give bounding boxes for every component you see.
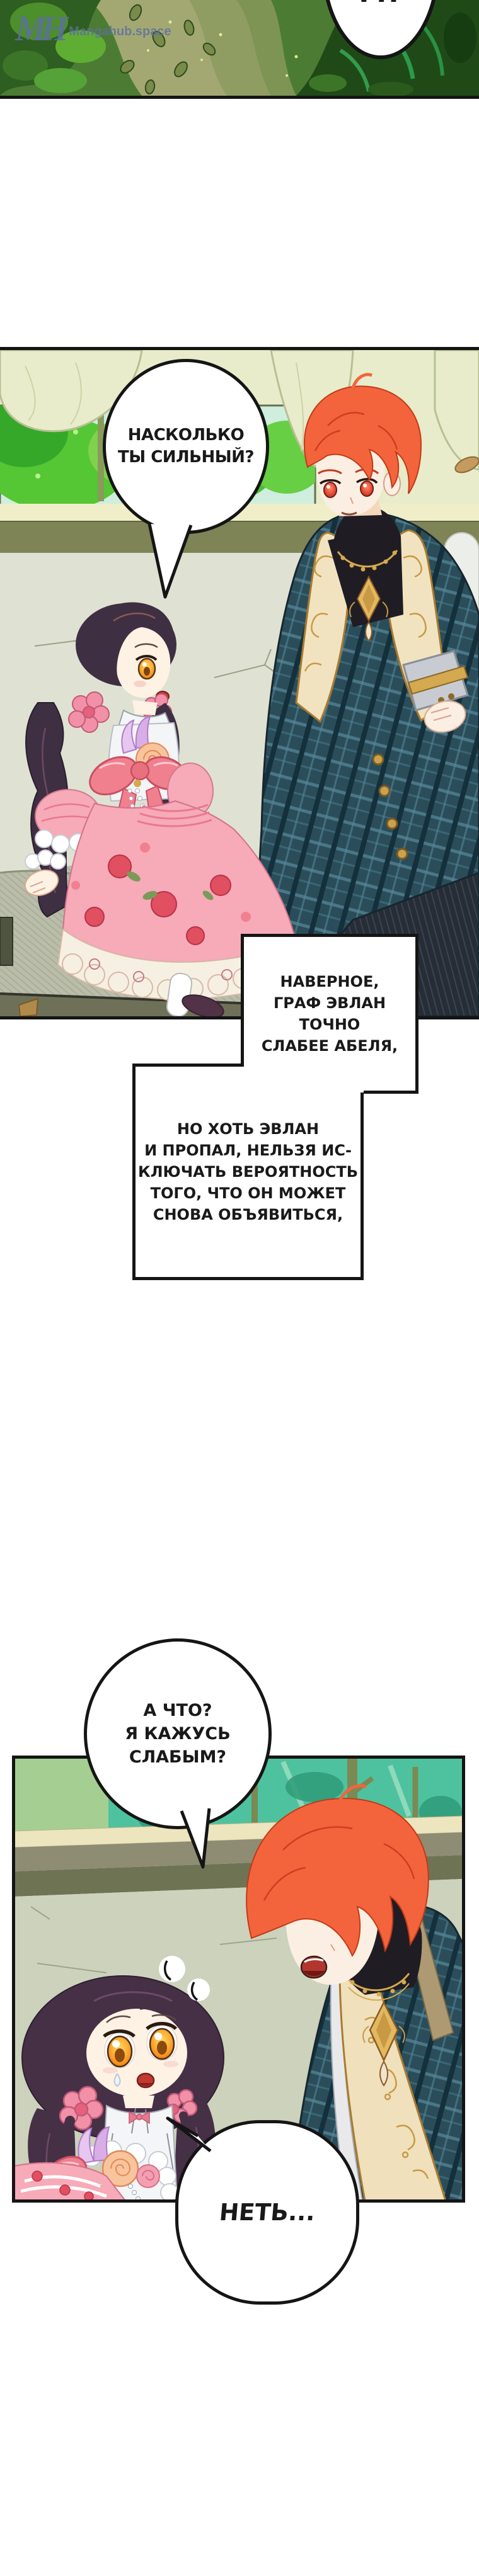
narration-box-2: НО ХОТЬ ЭВЛАН И ПРОПАЛ, НЕЛЬЗЯ ИС- КЛЮЧА… — [132, 1064, 364, 1280]
watermark-site-text: Mangahub.space — [69, 25, 171, 39]
watermark: MH Mangahub.space — [15, 11, 171, 47]
bubble-tail — [142, 521, 200, 601]
narration-line: ТОГО, ЧТО ОН МОЖЕТ — [151, 1183, 346, 1204]
narration-line: СНОВА ОБЪЯВИТЬСЯ, — [153, 1204, 343, 1225]
speech-line: СЛАБЫМ? — [129, 1745, 226, 1769]
speech-line: А ЧТО? — [143, 1699, 212, 1722]
girl2-mouth — [137, 2074, 154, 2087]
narration-line: НО ХОТЬ ЭВЛАН — [177, 1118, 319, 1140]
speech-line: НАСКОЛЬКО — [128, 424, 245, 446]
webtoon-page: MH Mangahub.space М? — [0, 0, 479, 2576]
speech-bubble-do-i-seem-weak: А ЧТО? Я КАЖУСЬ СЛАБЫМ? — [84, 1638, 272, 1829]
narration-line: КЛЮЧАТЬ ВЕРОЯТНОСТЬ — [138, 1161, 358, 1183]
bubble-tail — [178, 1806, 213, 1871]
mangahub-logo: MH — [15, 11, 62, 47]
speech-line: ТЫ СИЛЬНЫЙ? — [118, 446, 254, 468]
narration-line: ГРАФ ЭВЛАН ТОЧНО — [244, 992, 415, 1035]
bubble-tail — [159, 2111, 217, 2160]
panel-forest-border — [0, 96, 479, 99]
narration-line: НАВЕРНОЕ, — [280, 971, 379, 992]
man2-mouth-open — [301, 1956, 326, 1978]
narration-line: И ПРОПАЛ, НЕЛЬЗЯ ИС- — [144, 1140, 352, 1161]
speech-line: НЕТЬ... — [218, 2199, 316, 2226]
narration-box-union-patch — [244, 1064, 364, 1092]
speech-line: М? — [359, 0, 402, 9]
speech-bubble-how-strong: НАСКОЛЬКО ТЫ СИЛЬНЫЙ? — [103, 359, 269, 534]
narration-line: СЛАБЕЕ АБЕЛЯ, — [262, 1035, 398, 1057]
speech-line: Я КАЖУСЬ — [125, 1722, 230, 1745]
